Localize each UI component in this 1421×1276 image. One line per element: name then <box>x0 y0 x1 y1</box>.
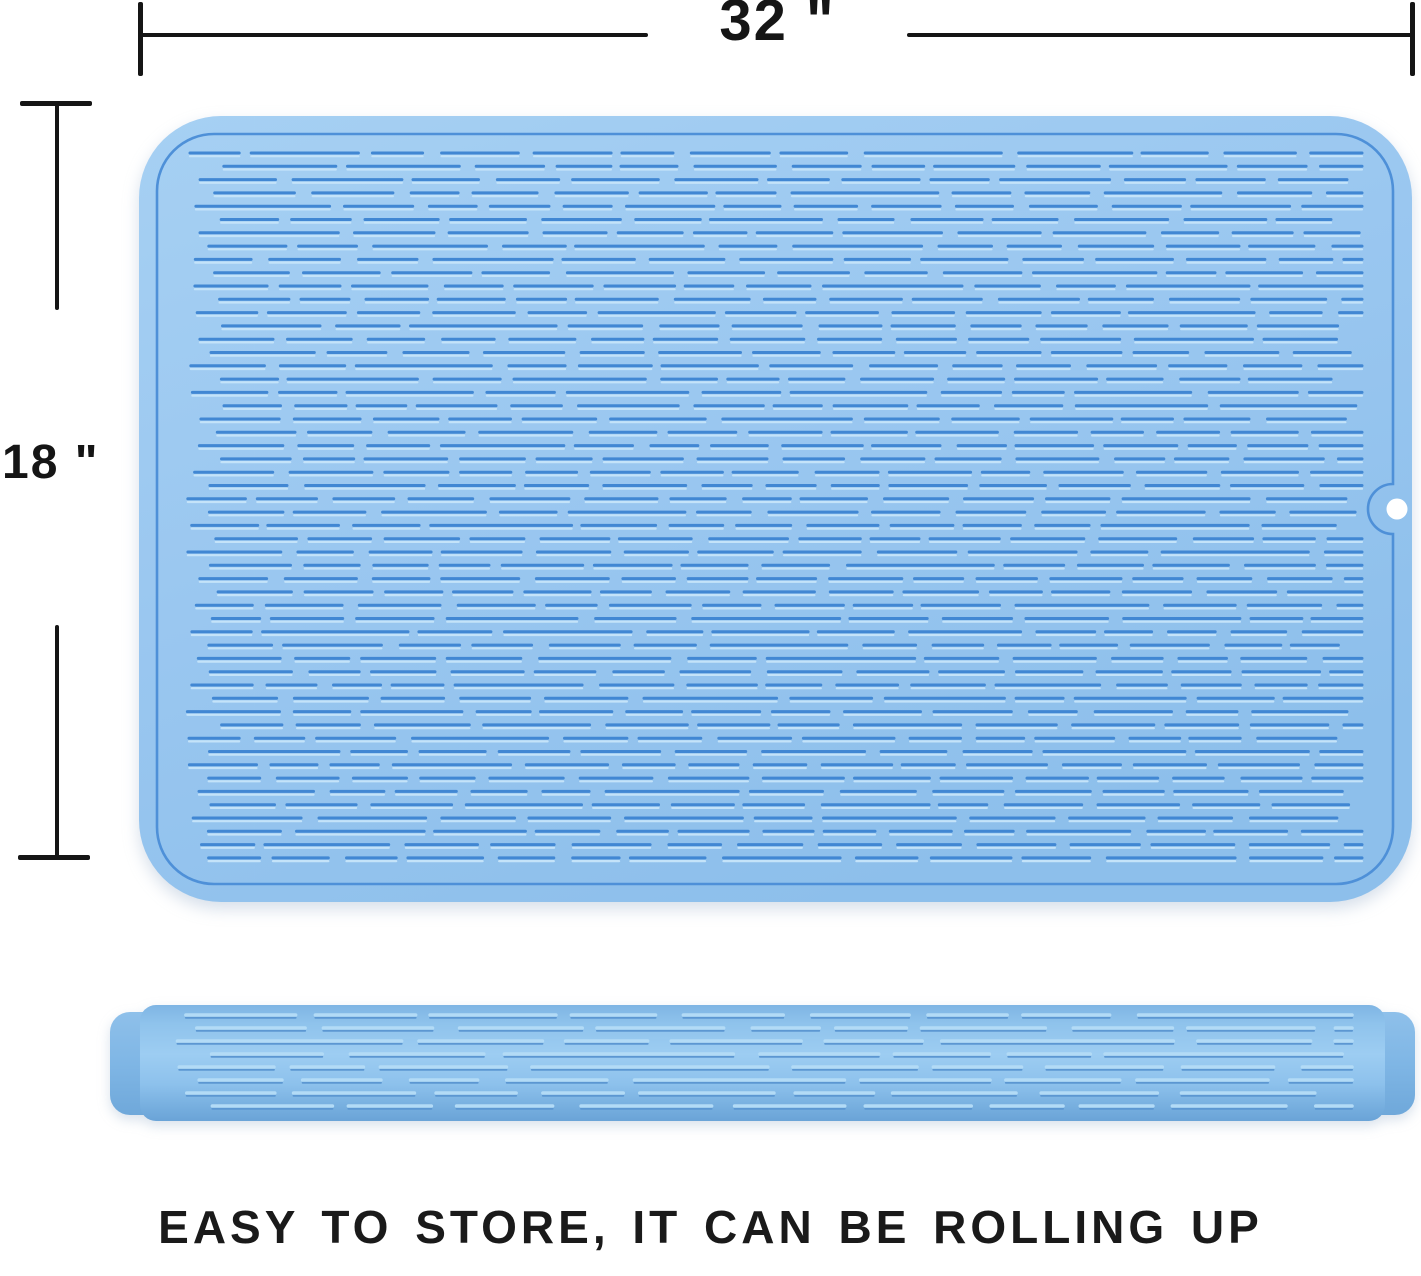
rolled-mat-photo <box>110 1005 1415 1121</box>
roll-body <box>140 1005 1385 1121</box>
height-dimension-line-top <box>55 103 59 310</box>
product-dimension-image: 32 " 18 " <box>0 0 1421 1276</box>
height-dimension-label: 18 " <box>2 439 112 487</box>
width-dimension-right-tick <box>1410 2 1415 76</box>
width-dimension-line-right <box>907 33 1413 37</box>
drying-mat-graphic <box>138 115 1413 903</box>
height-dimension-line-bottom <box>55 625 59 857</box>
width-dimension-line-left <box>140 33 648 37</box>
width-dimension-label: 32 " <box>648 0 907 50</box>
height-dimension-bottom-tick <box>18 855 90 860</box>
drying-mat-photo <box>138 115 1413 903</box>
rolled-mat-graphic <box>110 1005 1415 1121</box>
caption-text: EASY TO STORE, IT CAN BE ROLLING UP <box>0 1200 1421 1255</box>
hang-hole <box>1387 499 1408 520</box>
width-dimension-left-tick <box>138 2 143 76</box>
